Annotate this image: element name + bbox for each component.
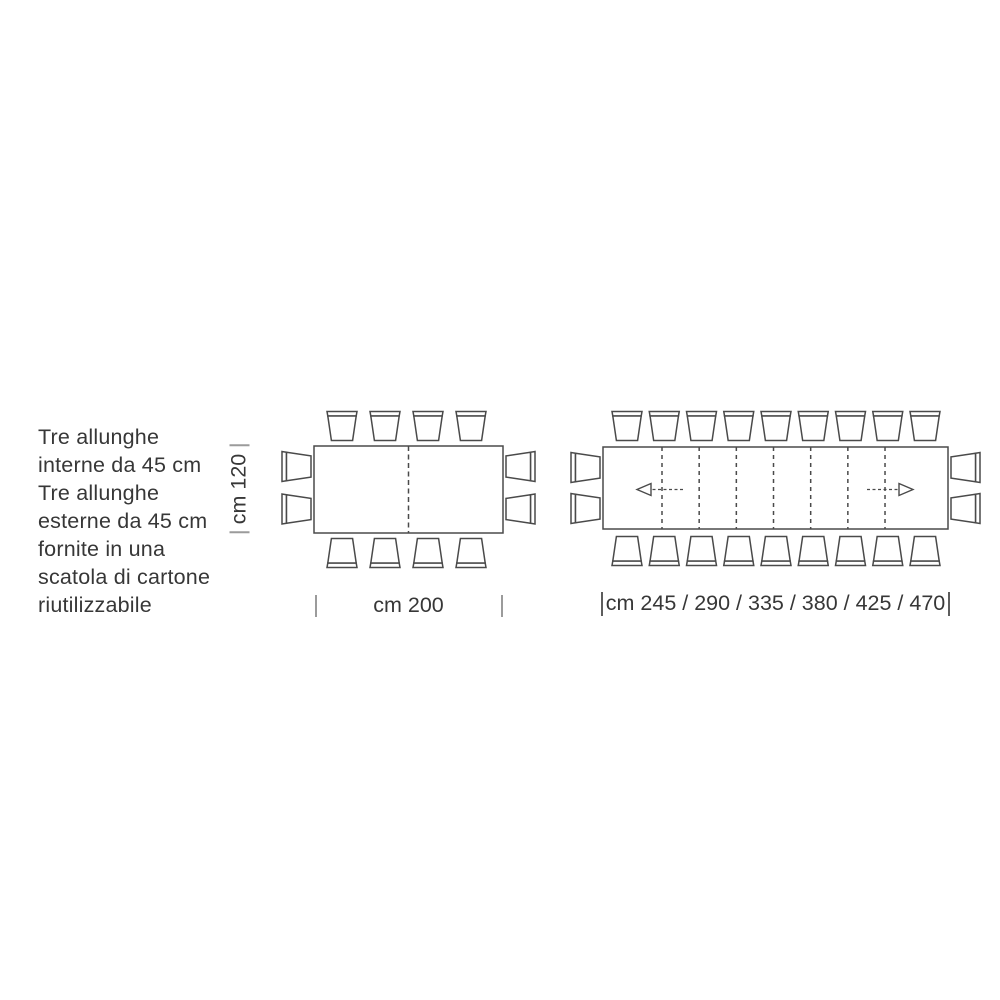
extended-table-diagram <box>571 412 980 566</box>
closed-table-diagram <box>282 412 535 618</box>
dimension-tick <box>229 531 249 533</box>
chair <box>413 412 443 441</box>
chair <box>798 412 828 441</box>
width-dimension-label-closed: cm 200 <box>314 593 503 618</box>
chair <box>649 537 679 566</box>
chair <box>836 412 866 441</box>
chair <box>798 537 828 566</box>
chair <box>951 453 980 483</box>
chair <box>413 539 443 568</box>
chair <box>370 539 400 568</box>
chair <box>612 537 642 566</box>
chair <box>506 494 535 524</box>
chair <box>282 494 311 524</box>
chair <box>612 412 642 441</box>
chair <box>456 412 486 441</box>
dimension-tick <box>948 592 950 616</box>
chair <box>571 453 600 483</box>
chair <box>649 412 679 441</box>
product-spec-sheet: Tre allunghe interne da 45 cm Tre allung… <box>0 0 1000 1000</box>
chair <box>910 537 940 566</box>
chair <box>836 537 866 566</box>
chair <box>724 412 754 441</box>
chair <box>327 412 357 441</box>
chair <box>951 494 980 524</box>
chair <box>327 539 357 568</box>
chair <box>910 412 940 441</box>
chair <box>687 412 717 441</box>
chair <box>370 412 400 441</box>
chair <box>873 537 903 566</box>
dimension-tick <box>229 445 249 447</box>
chair <box>687 537 717 566</box>
chair <box>724 537 754 566</box>
chair <box>873 412 903 441</box>
chair <box>571 494 600 524</box>
chair <box>506 452 535 482</box>
width-dimension-text: cm 245 / 290 / 335 / 380 / 425 / 470 <box>603 591 948 616</box>
chair <box>761 412 791 441</box>
depth-dimension-label: cm 120 <box>227 445 252 534</box>
chair <box>761 537 791 566</box>
tables-diagram <box>0 0 1000 1000</box>
depth-dimension-text: cm 120 <box>227 454 252 525</box>
chair <box>456 539 486 568</box>
width-dimension-label-extended: cm 245 / 290 / 335 / 380 / 425 / 470 <box>601 591 950 616</box>
chair <box>282 452 311 482</box>
table-top-extended <box>603 447 948 529</box>
